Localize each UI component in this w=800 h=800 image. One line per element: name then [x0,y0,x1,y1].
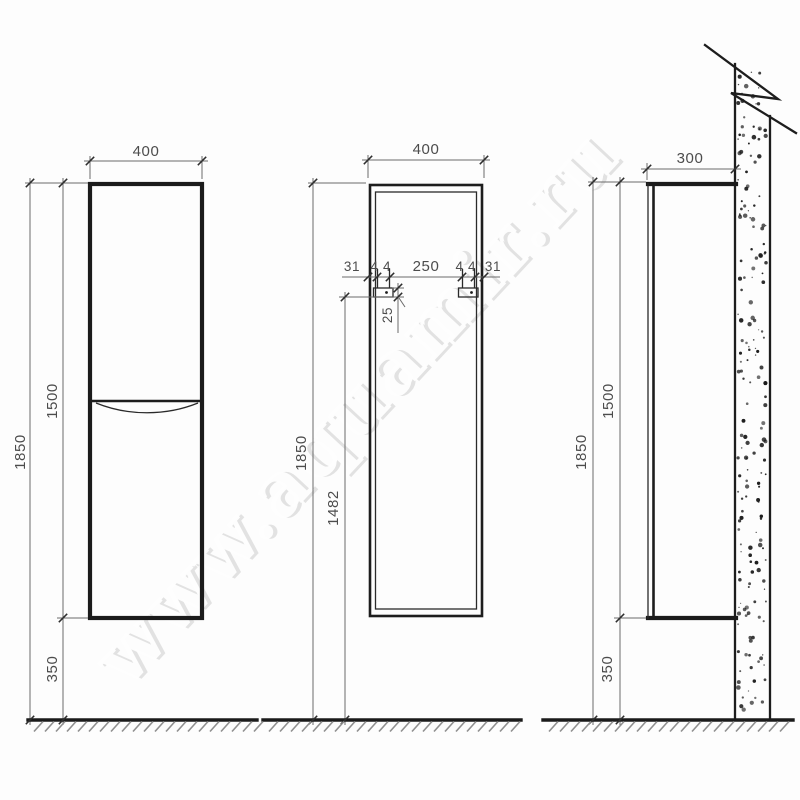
ground-hatch-stroke [467,722,476,732]
stipple-dot [763,403,767,407]
stipple-dot [740,434,744,438]
ground-hatch-stroke [335,722,344,732]
stipple-dot [740,551,741,552]
stipple-dot [737,138,738,139]
bracket-screw-dot [470,291,473,294]
stipple-dot [739,670,741,672]
stipple-dot [740,370,743,373]
stipple-dot [743,276,746,279]
stipple-dot [751,94,755,98]
stipple-dot [751,217,756,222]
stipple-dot [765,473,767,475]
ground-hatch-stroke [188,722,197,732]
wall-break-symbol [705,45,796,133]
ground-hatch-stroke [302,722,311,732]
stipple-dot [763,129,767,133]
stipple-dot [758,329,759,330]
stipple-dot [753,679,756,682]
side-cabinet-height-label: 1500 [600,383,617,419]
ground-hatch-stroke [604,722,613,732]
stipple-dot [740,543,742,545]
ground-hatch-stroke [681,722,690,732]
stipple-dot [752,451,755,454]
stipple-dot [760,366,764,370]
ground-hatch-stroke [456,722,465,732]
ground-hatch-stroke [45,722,54,732]
technical-drawing-page: www.aquamir.ru www.aquamir.ru 400 1850 1… [0,0,800,800]
stipple-dot [741,200,743,202]
ground-hatch-stroke [703,722,712,732]
stipple-dot [750,666,753,669]
stipple-dot [757,482,760,485]
stipple-dot [741,125,744,128]
stipple-dot [752,225,755,228]
stipple-dot [742,378,744,380]
stipple-dot [743,204,746,207]
stipple-dot [737,611,741,615]
stipple-dot [749,639,753,643]
stipple-dot [762,654,763,655]
stipple-dot [745,605,749,609]
stipple-dot [736,456,739,459]
stipple-dot [763,459,766,462]
bracket-width-right-label: 44 [455,259,480,274]
ground-hatch-stroke [155,722,164,732]
front-cabinet-height-label: 1500 [44,383,61,419]
ground-hatch-stroke [67,722,76,732]
watermark-text: www.aquamir.ru [74,109,636,703]
ground-hatch-stroke [111,722,120,732]
stipple-dot [746,457,748,459]
stipple-dot [753,126,755,128]
stipple-dot [737,179,739,181]
ground-hatch-stroke [166,722,175,732]
stipple-dot [740,99,744,103]
front-width-label: 400 [133,143,160,160]
stipple-dot [764,589,765,590]
ground-hatch-stroke [511,722,520,732]
cabinet-dimension-drawing: www.aquamir.ru www.aquamir.ru 400 1850 1… [0,0,800,800]
stipple-dot [736,101,740,105]
stipple-dot [763,664,765,666]
ground-hatch-stroke [133,722,142,732]
ground-hatch-stroke [401,722,410,732]
ground-hatch-stroke [736,722,745,732]
stipple-dot [757,375,761,379]
stipple-dot [757,102,760,105]
stipple-dot [758,486,760,488]
stipple-dot [739,704,743,708]
stipple-dot [742,134,745,137]
stipple-dot [748,690,749,691]
stipple-dot [745,480,748,483]
stipple-dot [741,93,742,94]
ground-hatch-stroke [379,722,388,732]
stipple-dot [740,361,742,363]
stipple-dot [760,443,764,447]
stipple-dot [738,607,739,608]
ground-hatch-stroke [489,722,498,732]
bracket-width-left-label: 44 [370,259,395,274]
rail-height-label: 25 [380,307,395,323]
stipple-dot [764,252,766,254]
stipple-dot [747,322,751,326]
stipple-dot [761,330,763,332]
stipple-dot [751,277,753,279]
ground-hatch-stroke [560,722,569,732]
ground-hatch-stroke [324,722,333,732]
stipple-dot [752,135,757,140]
stipple-dot [740,208,743,211]
watermark: www.aquamir.ru www.aquamir.ru [74,107,641,705]
stipple-dot [763,243,765,245]
stipple-dot [753,339,755,341]
ground-hatch-stroke [177,722,186,732]
ground-hatch-stroke [199,722,208,732]
ground-hatch-stroke [210,722,219,732]
stipple-dot [749,217,751,219]
stipple-dot [762,272,764,274]
stipple-dot [737,680,741,684]
wall-stipple-texture [736,72,768,712]
stipple-dot [738,277,742,281]
stipple-dot [750,248,753,251]
bracket-gap-label: 250 [413,258,440,275]
ground-hatch-stroke [725,722,734,732]
ground-hatch-stroke [390,722,399,732]
stipple-dot [758,616,761,619]
stipple-dot [748,586,750,588]
stipple-dot [737,623,739,625]
stipple-dot [748,143,750,145]
stipple-dot [755,103,756,104]
edge-offset-right-label: 31 [485,259,501,274]
ground-hatch-stroke [346,722,355,732]
ground-hatch-stroke [100,722,109,732]
stipple-dot [751,266,755,270]
stipple-dot [750,701,754,705]
ground-hatch-stroke [571,722,580,732]
front-total-height-label: 1850 [12,434,29,470]
front-door-handle-recess [96,403,198,413]
stipple-dot [748,553,752,557]
stipple-dot [755,348,756,349]
back-total-height-label: 1850 [293,435,310,471]
stipple-dot [748,210,749,211]
stipple-dot [761,280,765,284]
ground-hatch-stroke [34,722,43,732]
ground-hatch-stroke [221,722,230,732]
stipple-dot [750,560,753,563]
ground-hatch-stroke [357,722,366,732]
stipple-dot [742,419,746,423]
ground-hatch-stroke [500,722,509,732]
stipple-dot [748,654,751,657]
stipple-dot [759,254,764,259]
stipple-dot [738,474,741,477]
ground-hatch-stroke [445,722,454,732]
stipple-dot [738,75,742,79]
stipple-dot [754,697,756,699]
stipple-dot [750,155,752,157]
stipple-dot [736,685,741,690]
stipple-dot [758,72,761,75]
stipple-dot [757,154,761,158]
ground-hatch-stroke [78,722,87,732]
stipple-dot [742,696,744,698]
stipple-dot [740,260,743,263]
ground-hatch-stroke [291,722,300,732]
stipple-dot [748,545,752,549]
stipple-dot [758,138,761,141]
stipple-dot [763,381,767,385]
stipple-dot [760,514,764,518]
stipple-dot [753,204,755,206]
stipple-dot [762,579,765,582]
ground-hatch-stroke [670,722,679,732]
stipple-dot [759,538,763,542]
stipple-dot [744,653,747,656]
stipple-dot [740,603,741,604]
ground-hatch-stroke [280,722,289,732]
stipple-dot [745,495,747,497]
bracket-height-label: 1482 [325,490,342,526]
stipple-dot [753,600,756,603]
stipple-dot [761,700,764,703]
stipple-dot [765,559,767,561]
stipple-dot [747,469,749,471]
stipple-dot [738,151,742,155]
stipple-dot [741,339,744,342]
stipple-dot [740,289,743,292]
ground-hatch-stroke [637,722,646,732]
stipple-dot [739,516,743,520]
stipple-dot [745,484,749,488]
ground-hatch-stroke [714,722,723,732]
ground-hatch-stroke [747,722,756,732]
stipple-dot [743,116,745,118]
stipple-dot [738,578,742,582]
stipple-dot [761,224,765,228]
stipple-dot [738,134,741,137]
stipple-dot [751,570,755,574]
side-clearance-label: 350 [599,656,616,683]
ground-hatch-stroke [582,722,591,732]
stipple-dot [760,427,763,430]
stipple-dot [764,678,767,681]
stipple-dot [741,510,744,513]
stipple-dot [764,395,767,398]
stipple-dot [747,359,749,361]
ground-hatch-stroke [269,722,278,732]
ground-hatch-stroke [626,722,635,732]
ground-hatch-stroke [368,722,377,732]
stipple-dot [746,184,750,188]
stipple-dot [748,636,752,640]
stipple-dot [743,435,747,439]
ground-hatch-stroke [648,722,657,732]
ground-hatch-stroke [593,722,602,732]
stipple-dot [748,346,750,348]
stipple-dot [739,318,744,323]
stipple-dot [738,571,741,574]
stipple-dot [753,319,756,322]
stipple-dot [760,472,762,474]
back-width-label: 400 [413,141,440,158]
stipple-dot [756,532,757,533]
stipple-dot [758,501,760,503]
side-total-height-label: 1850 [573,434,590,470]
side-depth-label: 300 [677,150,704,167]
stipple-dot [759,656,763,660]
ground-hatch-stroke [313,722,322,732]
stipple-dot [737,314,739,316]
stipple-dot [763,337,765,339]
stipple-dot [742,707,746,711]
stipple-dot [755,354,756,355]
ground-hatch-stroke [254,722,263,732]
stipple-dot [743,213,747,217]
stipple-dot [745,441,749,445]
edge-offset-left-label: 31 [344,259,360,274]
stipple-dot [747,611,751,615]
stipple-dot [755,561,759,565]
stipple-dot [751,72,752,73]
stipple-dot [741,497,743,499]
stipple-dot [748,348,751,351]
stipple-dot [737,650,740,653]
ground-hatch-stroke [780,722,789,732]
stipple-dot [749,300,753,304]
ground-hatch-stroke [659,722,668,732]
stipple-dot [745,614,748,617]
stipple-dot [748,582,751,585]
stipple-dot [762,547,764,549]
stipple-dot [761,421,765,425]
stipple-dot [737,528,740,531]
stipple-dot [758,543,762,547]
stipple-dot [755,256,758,259]
stipple-dot [746,402,749,405]
stipple-dot [741,447,743,449]
ground-hatch-stroke [434,722,443,732]
ground-hatch-stroke [692,722,701,732]
stipple-dot [749,381,751,383]
ground-hatch-stroke [243,722,252,732]
stipple-dot [763,620,765,622]
ground-hatch-stroke [89,722,98,732]
stipple-dot [758,195,760,197]
stipple-dot [765,601,767,603]
stipple-dot [757,660,760,663]
ground-hatch-stroke [423,722,432,732]
stipple-dot [738,519,741,522]
stipple-dot [744,84,749,89]
floor-hatching [34,722,789,732]
stipple-dot [764,261,768,265]
ground-hatch-stroke [769,722,778,732]
ground-hatch-stroke [412,722,421,732]
ground-hatch-stroke [758,722,767,732]
stipple-dot [764,134,768,138]
ground-hatch-stroke [122,722,131,732]
stipple-dot [758,87,759,88]
ground-hatch-stroke [549,722,558,732]
stipple-dot [739,352,742,355]
bracket-screw-dot [385,291,388,294]
stipple-dot [762,437,767,442]
stipple-dot [758,127,762,131]
stipple-dot [757,568,761,572]
stipple-dot [745,171,748,174]
ground-hatch-stroke [478,722,487,732]
stipple-dot [737,491,739,493]
front-clearance-label: 350 [44,656,61,683]
stipple-dot [738,84,739,85]
stipple-dot [756,350,759,353]
stipple-dot [739,215,741,217]
ground-hatch-stroke [232,722,241,732]
stipple-dot [745,342,748,345]
stipple-dot [754,161,757,164]
ground-hatch-stroke [144,722,153,732]
